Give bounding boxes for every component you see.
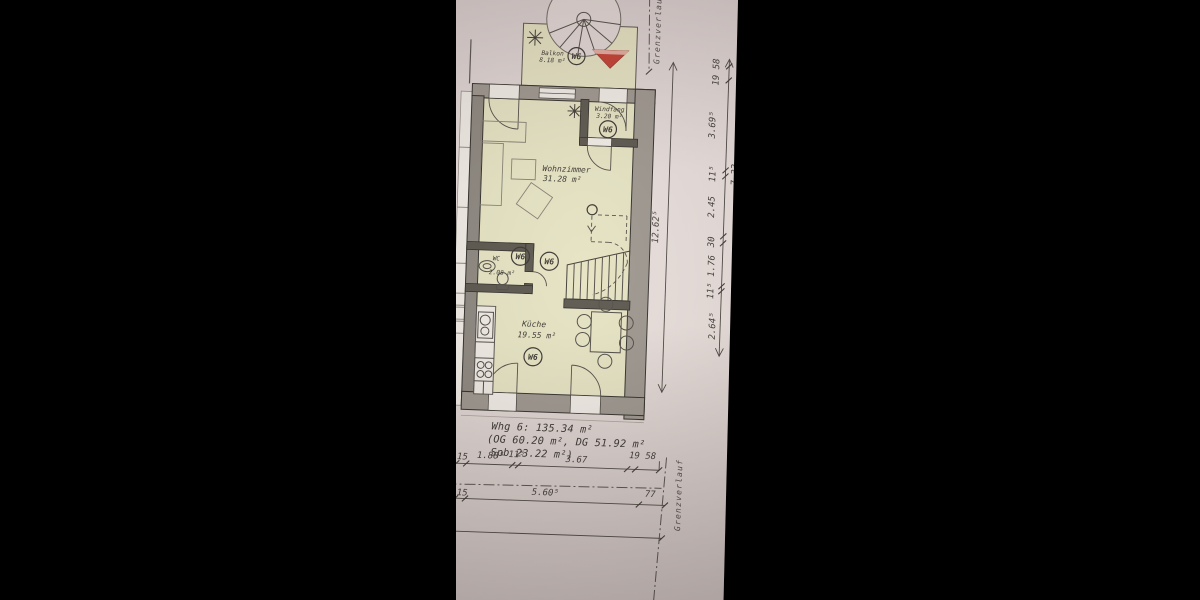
boundary-label-bottom: Grenzverlauf [673, 459, 685, 531]
dim-b2-1: 15 [457, 488, 468, 498]
dim-r-2: 11⁵ [708, 166, 719, 183]
lamp-symbol [527, 29, 544, 46]
balcony: Balkon 8.18 m² W6 [521, 0, 639, 89]
unit-label: W6 [528, 353, 538, 362]
dim-r-4: 30 [707, 236, 717, 248]
dim-right-overall: 12.62⁵ [651, 211, 662, 244]
paper-sheet: Balkon 8.18 m² W6 [456, 0, 740, 600]
dim-r-1: 3.69⁵ [708, 111, 719, 139]
boundary-line-top [647, 0, 652, 72]
room-label-wohnzimmer: Wohnzimmer [542, 164, 591, 175]
summary-line-1: Whg 6: 135.34 m² [491, 421, 593, 436]
room-label-wc: WC [493, 255, 501, 262]
room-area-windfang: 3.20 m² [595, 113, 622, 121]
dim-b2-2: 5.60⁵ [532, 488, 559, 499]
boundary-label-top: Grenzverlauf [652, 0, 664, 64]
room-area-wc: 2.08 m² [489, 269, 515, 277]
room-label-kueche: Küche [521, 319, 547, 329]
photo-of-floor-plan: Balkon 8.18 m² W6 [0, 0, 1200, 600]
boundary-line-vertical [653, 457, 666, 600]
dim-b1-2: 1.88⁵ [477, 451, 504, 462]
floor-plan-drawing: Balkon 8.18 m² W6 [456, 0, 740, 600]
unit-label: W6 [572, 52, 582, 61]
dim-r-7: 2.64⁵ [708, 312, 719, 339]
unit-label: W6 [515, 252, 525, 261]
dim-right-subtotal: 7.33 [730, 164, 740, 186]
unit-label: W6 [603, 125, 613, 134]
dim-r-5: 1.76 [707, 255, 718, 277]
dim-r-0: 19 58 [712, 58, 723, 85]
room-area-wohnzimmer: 31.28 m² [542, 174, 582, 184]
dim-b1-3: 11⁵ [508, 450, 525, 461]
dim-b1-4: 3.67 [564, 455, 588, 466]
dim-b1-5: 19 58 [629, 451, 656, 462]
dim-r-6: 11⁵ [706, 283, 717, 300]
site-line [456, 528, 665, 542]
room-area-balkon: 8.18 m² [539, 57, 565, 65]
unit-label: W6 [544, 257, 554, 266]
dim-b1-1: 15 [457, 452, 468, 462]
dim-r-3: 2.45 [707, 196, 718, 218]
dim-b2-3: 77 [645, 490, 657, 500]
room-area-kueche: 19.55 m² [517, 330, 556, 340]
dimension-chain-right: 19 58 3.69⁵ 11⁵ 2.45 30 1.76 11⁵ 2.64⁵ 7… [700, 58, 740, 357]
